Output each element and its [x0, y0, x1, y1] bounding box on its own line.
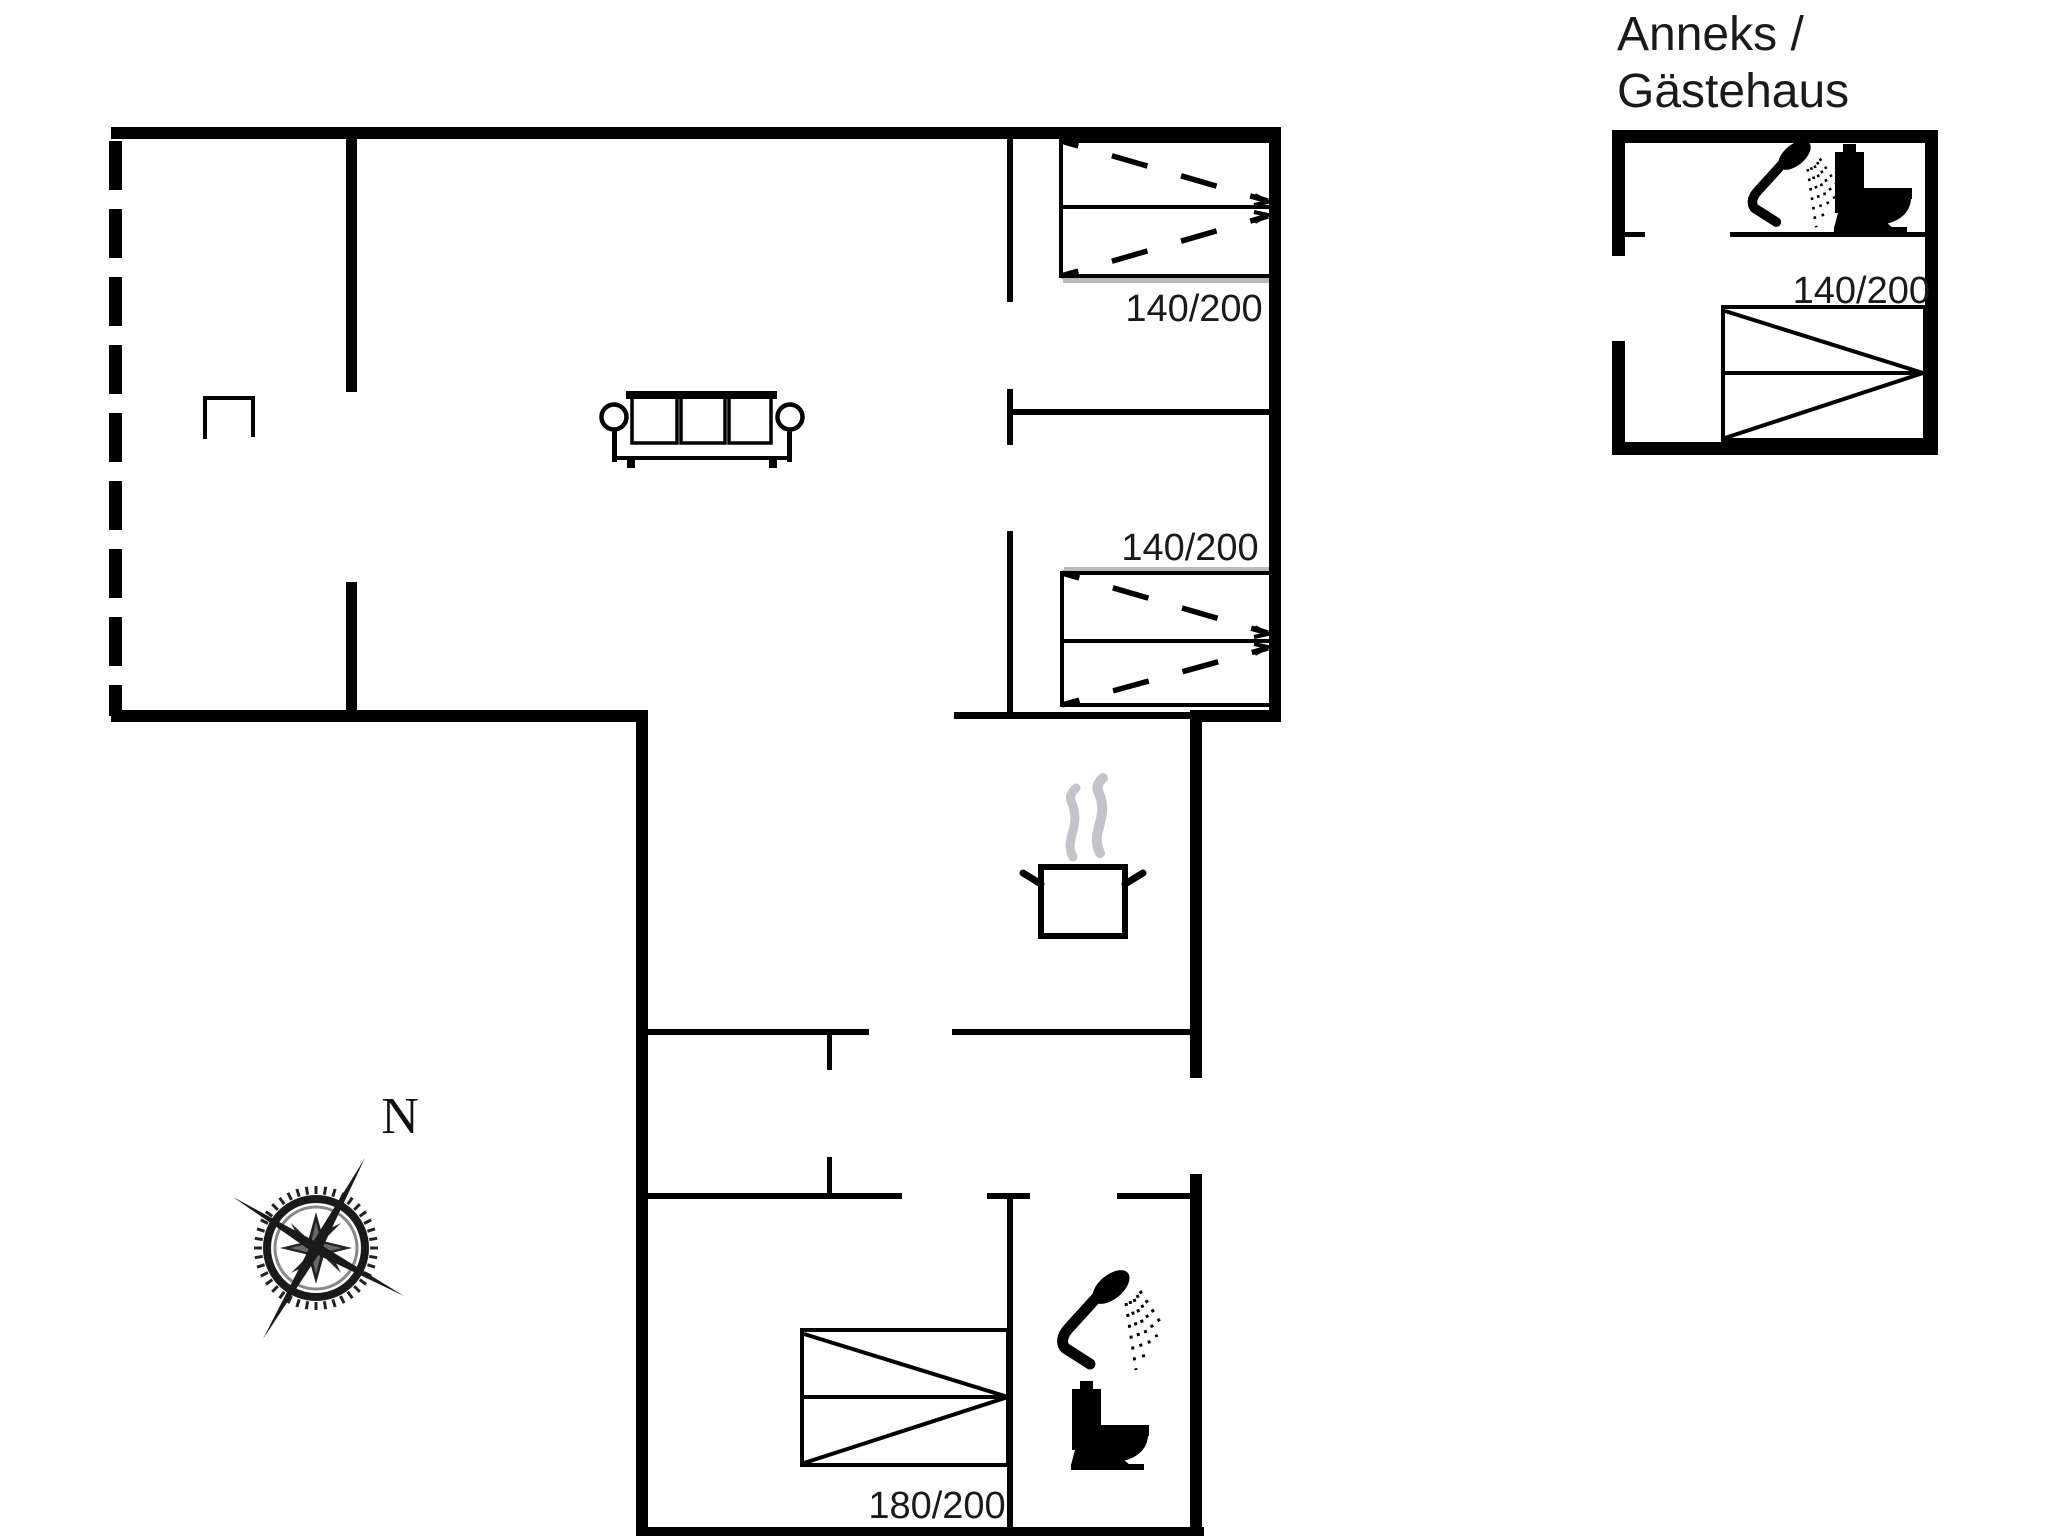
svg-text:140/200: 140/200: [1125, 288, 1262, 330]
svg-text:140/200: 140/200: [1121, 527, 1258, 569]
svg-text:Gästehaus: Gästehaus: [1617, 65, 1849, 118]
svg-text:180/200: 180/200: [868, 1485, 1005, 1527]
svg-text:N: N: [381, 1088, 419, 1145]
svg-text:Anneks /: Anneks /: [1617, 8, 1804, 61]
